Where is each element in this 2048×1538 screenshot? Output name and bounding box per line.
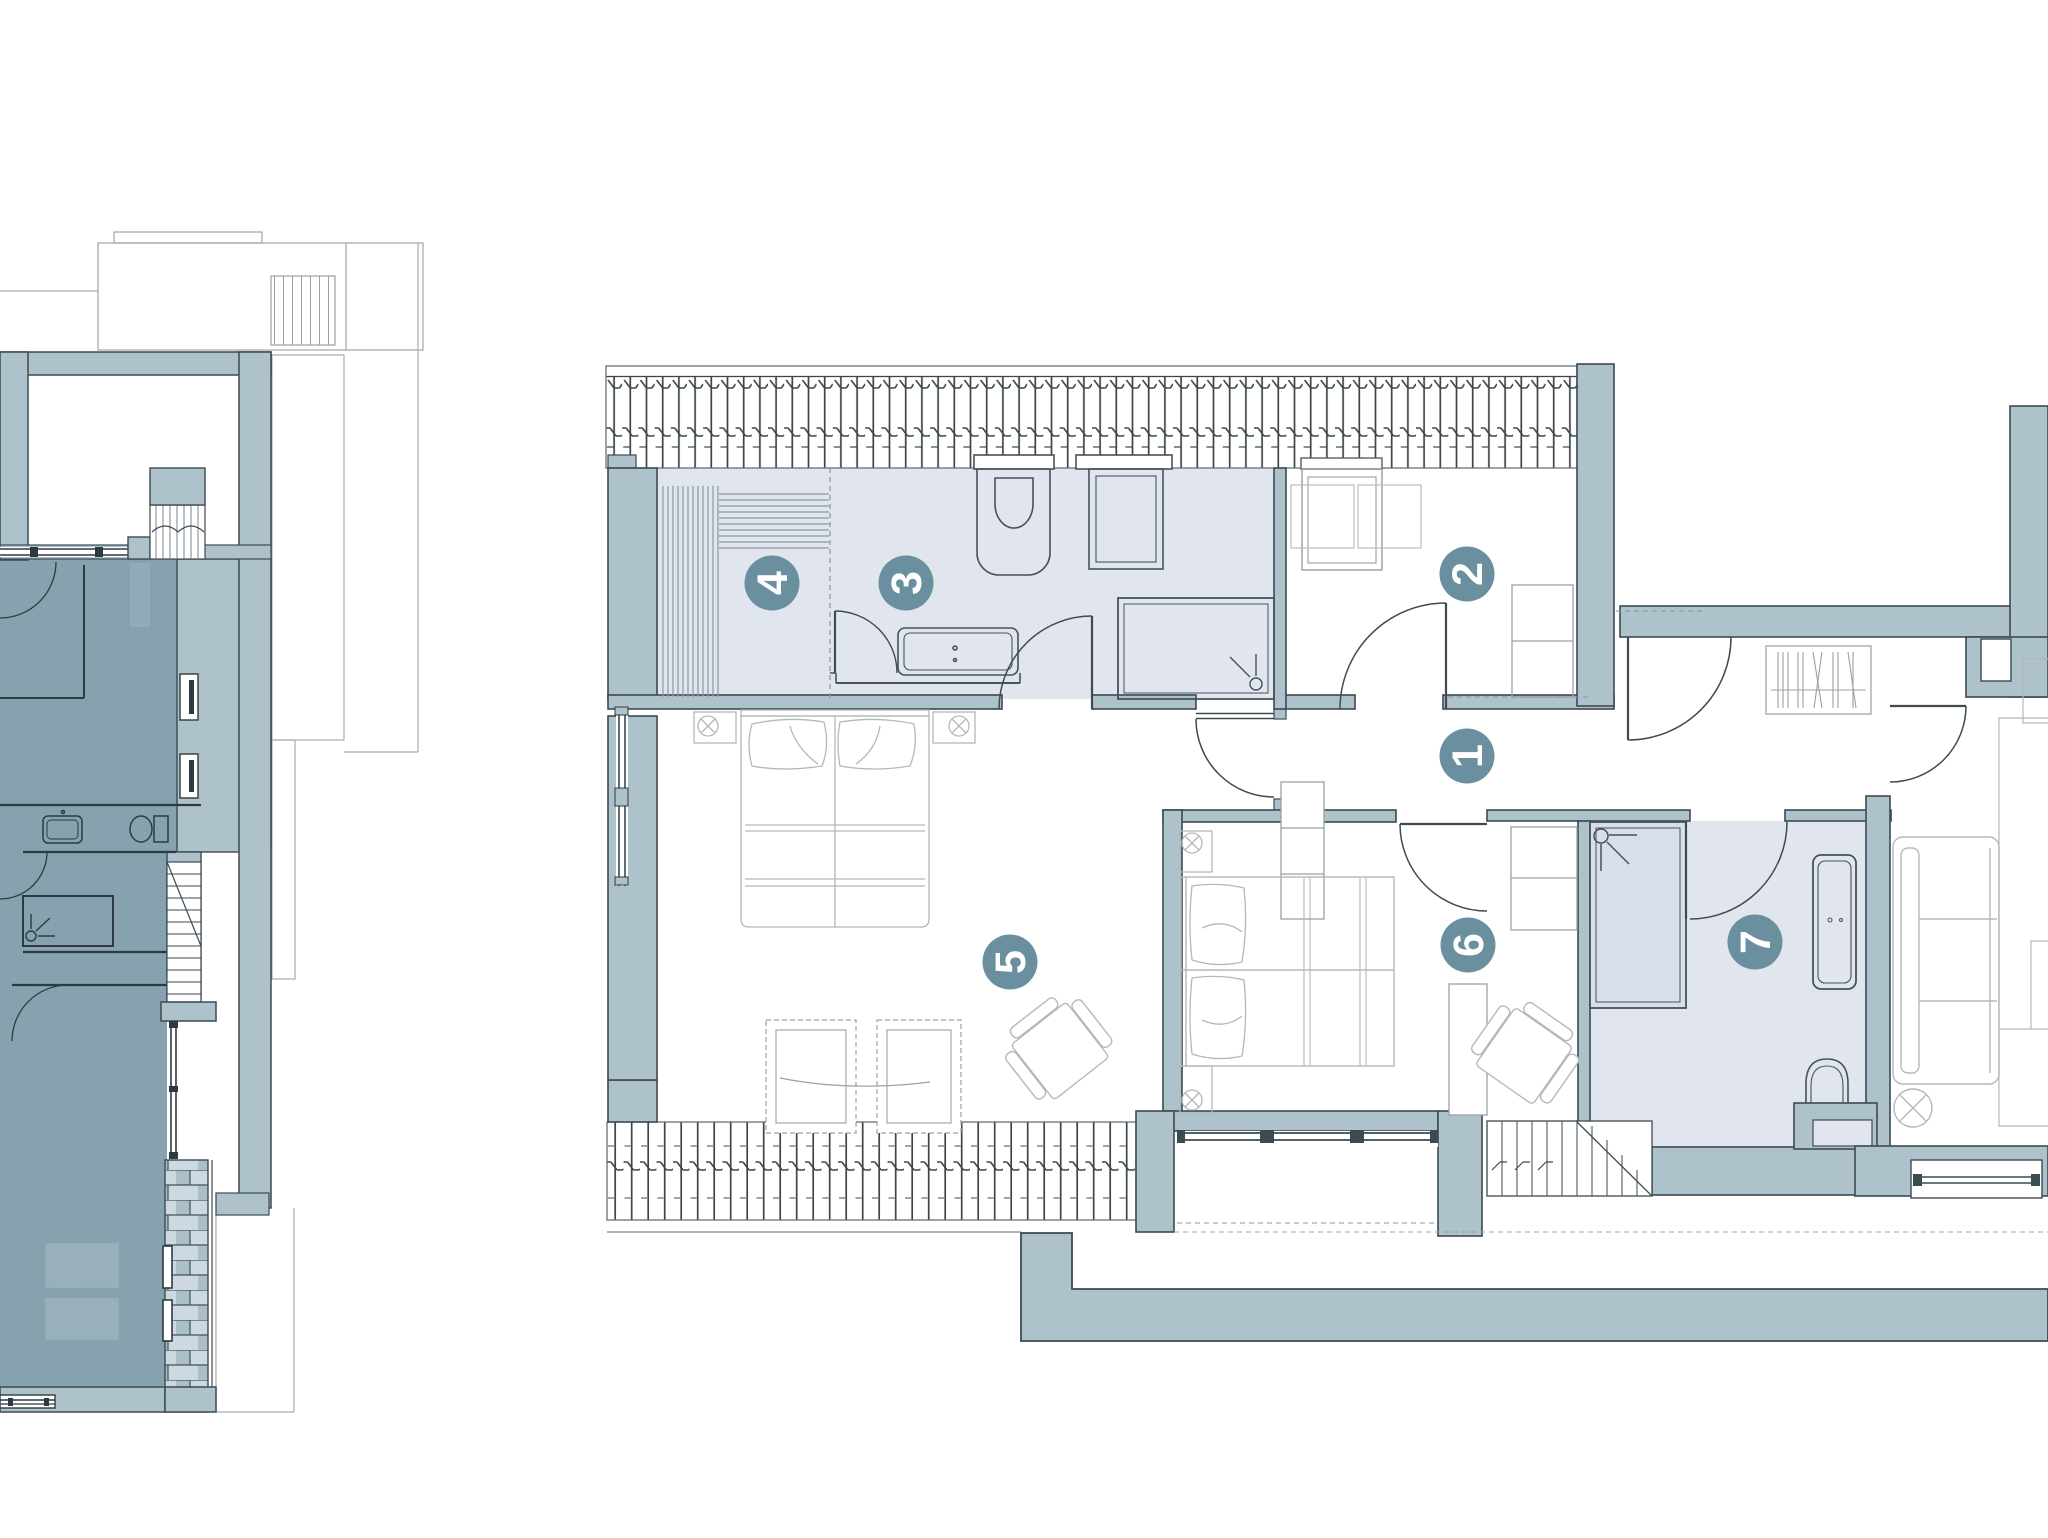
svg-text:2: 2 xyxy=(1444,562,1492,586)
svg-text:4: 4 xyxy=(749,571,797,595)
svg-text:7: 7 xyxy=(1732,930,1780,954)
svg-text:5: 5 xyxy=(987,950,1035,974)
svg-text:6: 6 xyxy=(1445,933,1493,957)
svg-text:3: 3 xyxy=(883,571,931,595)
svg-text:1: 1 xyxy=(1444,744,1492,768)
